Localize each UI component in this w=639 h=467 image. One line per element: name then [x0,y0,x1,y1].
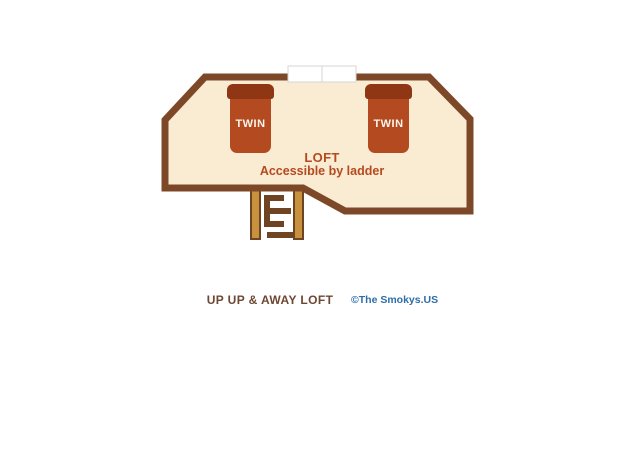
ladder-rung [264,221,284,227]
twin-bed-right: TWIN [365,84,412,153]
bed-headboard [365,84,412,99]
twin-bed-left: TWIN [227,84,274,153]
floorplan-canvas: TWIN TWIN LOFT Accessible by ladder UP U… [0,0,639,467]
ladder-right-rail [294,186,303,239]
room-label: LOFT [232,150,412,165]
bed-label: TWIN [365,118,412,130]
ladder-icon [251,186,303,239]
room-sublabel: Accessible by ladder [222,164,422,178]
window-pane-left [288,66,322,82]
window-pane-right [322,66,356,82]
loft-floorplan-drawing [0,0,639,467]
plan-credit: ©The Smokys.US [351,294,451,306]
bed-headboard [227,84,274,99]
ladder-rung [264,208,291,214]
plan-title: UP UP & AWAY LOFT [168,293,372,307]
window-icon [288,66,356,82]
ladder-left-rail [251,186,260,239]
loft-room-outline [165,77,470,211]
ladder-rung [267,232,294,238]
ladder-rung [264,195,284,201]
bed-label: TWIN [227,118,274,130]
